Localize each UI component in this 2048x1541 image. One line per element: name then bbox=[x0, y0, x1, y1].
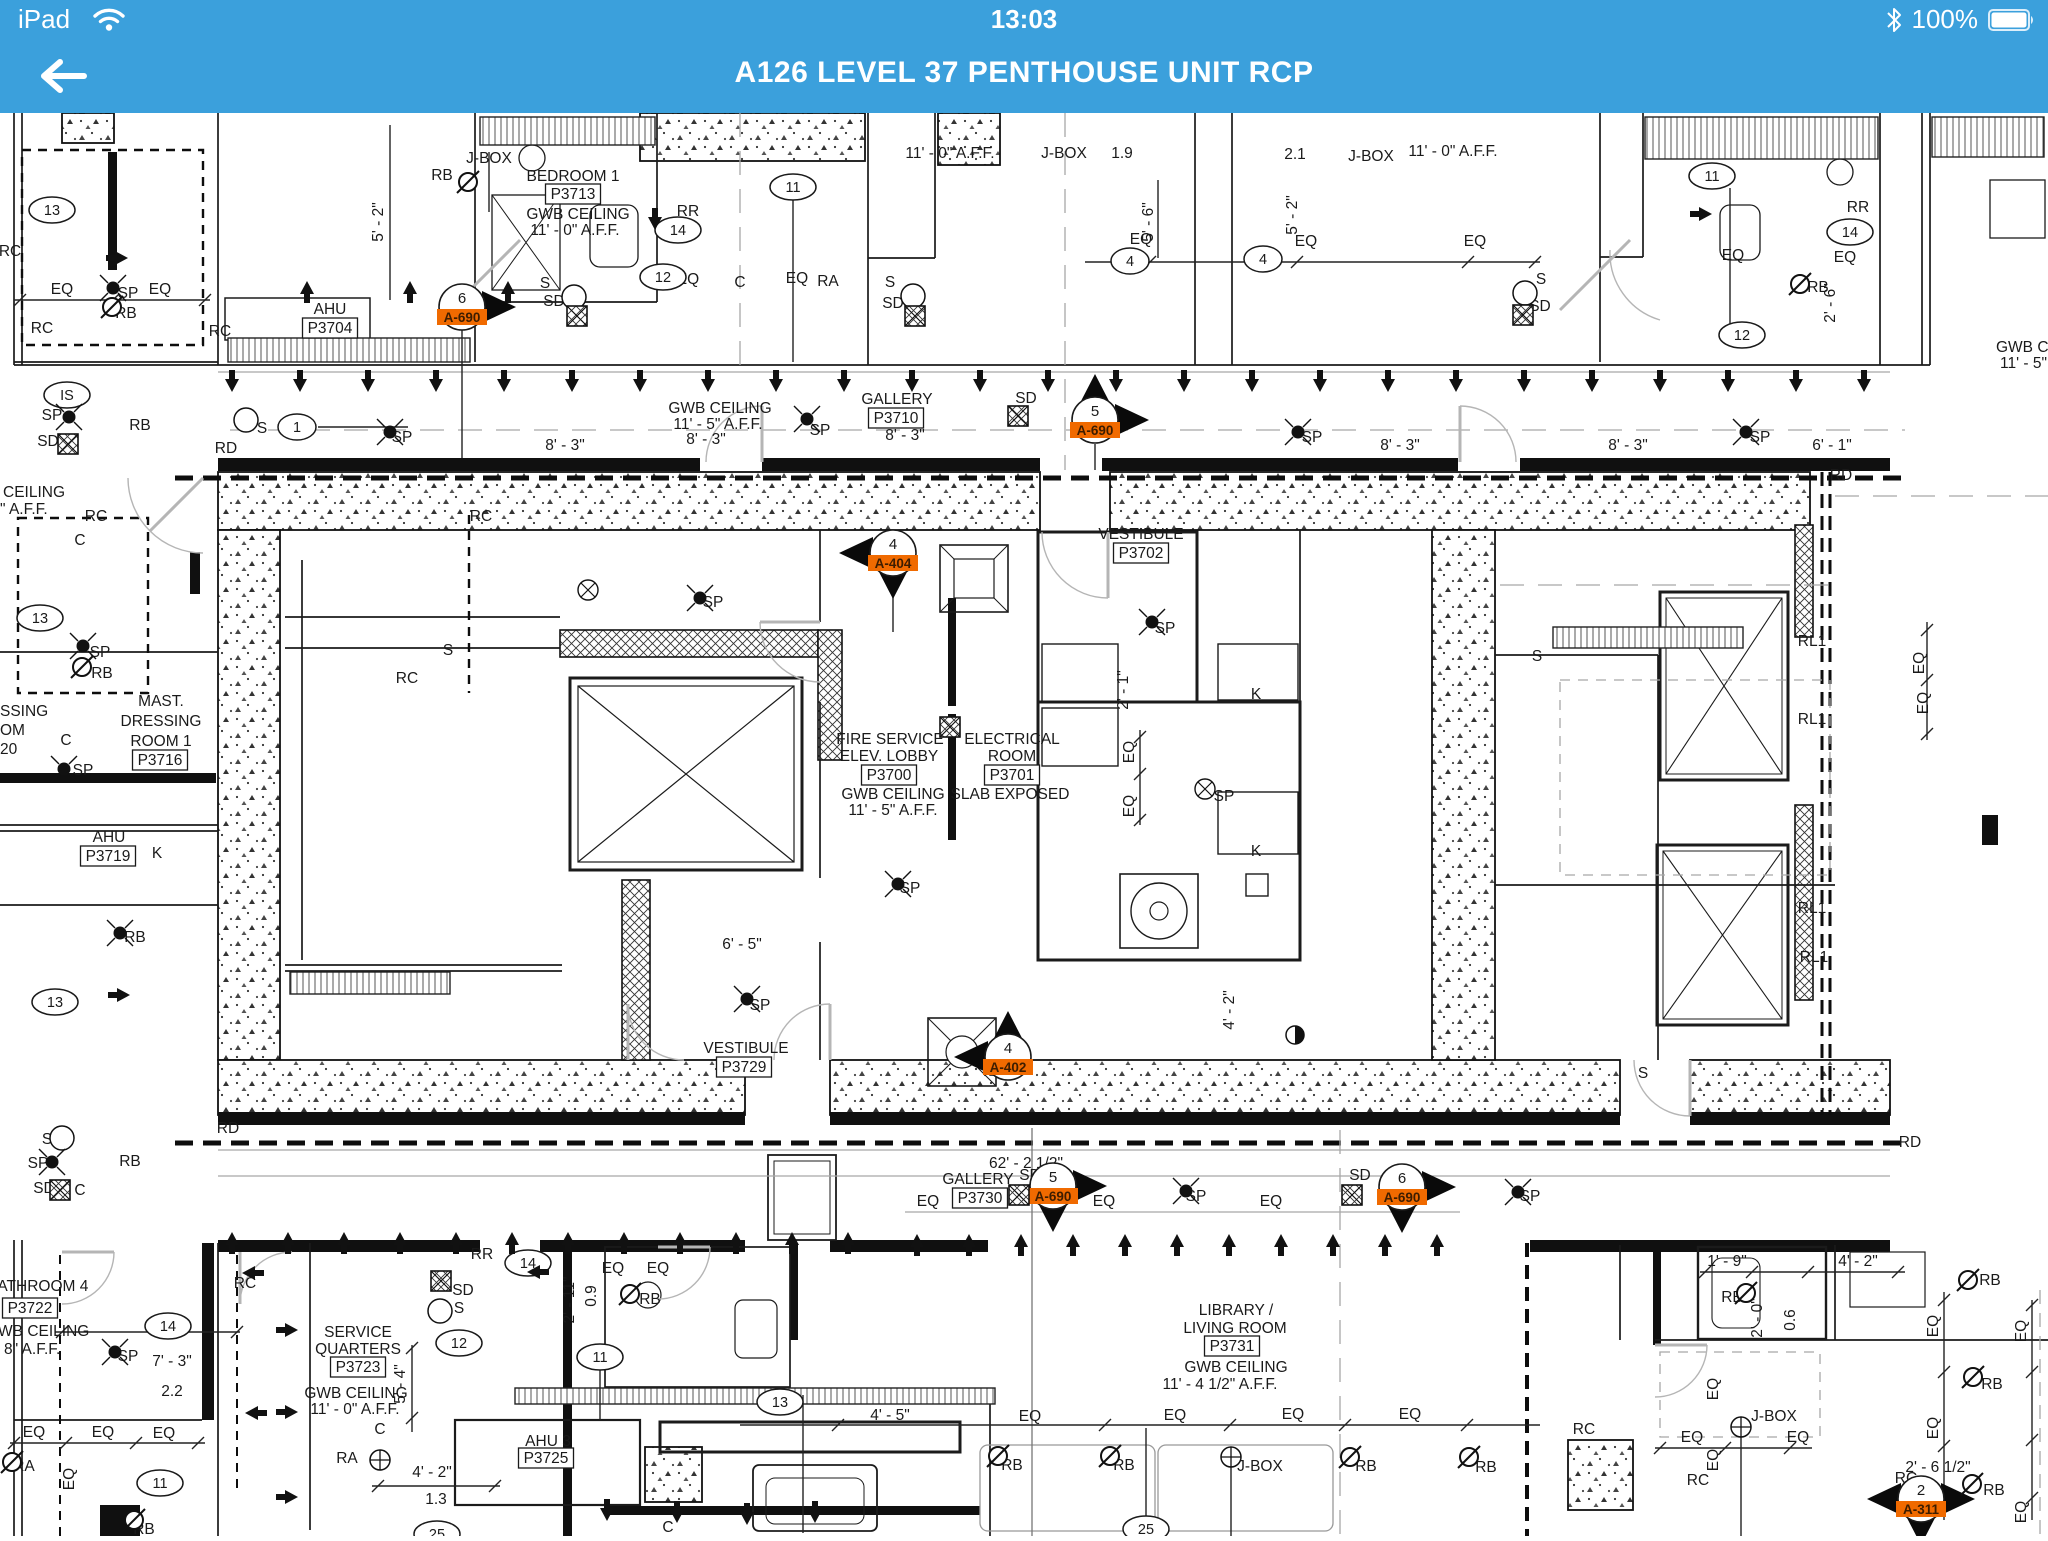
plan-label: 8' - 3" bbox=[545, 437, 584, 454]
plan-label: EQ bbox=[1260, 1193, 1282, 1210]
floor-plan-svg: J-BOXBEDROOM 1GWB CEILING11' - 0" A.F.F.… bbox=[0, 0, 2048, 1536]
plan-label: RD bbox=[1830, 467, 1852, 484]
plan-label: C bbox=[662, 1519, 673, 1536]
plan-label: GALLERY bbox=[861, 391, 932, 408]
grid-bubble-label: 13 bbox=[47, 995, 63, 1011]
room-number: P3700 bbox=[867, 767, 912, 784]
plan-label: RL1 bbox=[1798, 711, 1826, 728]
plan-label: 11' - 0" A.F.F. bbox=[530, 222, 619, 239]
plan-label: RA bbox=[336, 1450, 358, 1467]
plan-label: K bbox=[1251, 843, 1262, 860]
plan-label: SSING bbox=[0, 703, 48, 720]
symbol-sd bbox=[1342, 1185, 1362, 1205]
grid-bubble-label: 13 bbox=[32, 611, 48, 627]
room-number: P3731 bbox=[1210, 1338, 1255, 1355]
battery-percent: 100% bbox=[1912, 4, 1979, 35]
plan-label: RL1 bbox=[1800, 949, 1828, 966]
plan-label: GWB CEILING bbox=[1996, 339, 2048, 356]
plan-label: 5' - 4" bbox=[392, 1364, 409, 1403]
plan-label: GWB CEILING bbox=[668, 400, 771, 417]
plan-label: RR bbox=[1847, 199, 1869, 216]
svg-text:A-690: A-690 bbox=[1077, 423, 1114, 438]
plan-label: RD bbox=[217, 1120, 239, 1137]
symbol-sd bbox=[1008, 406, 1028, 426]
plan-label: EQ bbox=[51, 281, 73, 298]
grid-bubble-label: 1 bbox=[293, 420, 301, 436]
room-number: P3723 bbox=[336, 1359, 381, 1376]
status-bar: iPad 13:03 100% bbox=[0, 0, 2048, 40]
plan-label: RB bbox=[639, 1291, 661, 1308]
plan-label: 11' - 0" A.F.F. bbox=[1408, 143, 1497, 160]
grid-bubble-label: 14 bbox=[160, 1319, 176, 1335]
plan-label: RR bbox=[471, 1246, 493, 1263]
symbol-sd bbox=[50, 1180, 70, 1200]
plan-label: RC bbox=[85, 508, 107, 525]
room-number: P3704 bbox=[308, 320, 353, 337]
plan-label: J-BOX bbox=[1751, 1408, 1797, 1425]
svg-text:5: 5 bbox=[1091, 403, 1099, 420]
plan-label: AHU bbox=[314, 301, 347, 318]
plan-label: 11' - 0" A.F.F. bbox=[905, 145, 994, 162]
grid-bubble-label: 4 bbox=[1126, 254, 1134, 270]
plan-label: 20 bbox=[0, 741, 18, 758]
plan-label: 5' - 2" bbox=[370, 202, 387, 241]
plan-label: EQ bbox=[23, 1424, 45, 1441]
plan-label: C bbox=[734, 274, 745, 291]
plan-label: " A.F.F. bbox=[0, 501, 48, 518]
symbol-sd bbox=[431, 1271, 451, 1291]
svg-text:4: 4 bbox=[1004, 1040, 1012, 1057]
plan-label: EQ bbox=[1722, 247, 1744, 264]
plan-label: S bbox=[1536, 271, 1546, 288]
plan-label: SD bbox=[452, 1282, 474, 1299]
plan-label: GWB CEILING bbox=[1184, 1359, 1287, 1376]
symbol-sd bbox=[940, 717, 960, 737]
plan-label: 5' - 2" bbox=[1284, 195, 1301, 234]
plan-label: 2' - 6" bbox=[1822, 283, 1839, 322]
plan-label: BATHROOM 4 bbox=[0, 1278, 89, 1295]
plan-label: EQ bbox=[917, 1193, 939, 1210]
plan-label: SP bbox=[90, 644, 111, 661]
grid-bubble-label: IS bbox=[60, 388, 74, 404]
plan-label: RB bbox=[1981, 1376, 2003, 1393]
plan-label: EQ bbox=[2013, 1320, 2030, 1342]
grid-bubble-label: 12 bbox=[655, 270, 671, 286]
plan-label: SP bbox=[1750, 429, 1771, 446]
plan-label: J-BOX bbox=[1237, 1458, 1283, 1475]
plan-label: 4' - 2" bbox=[412, 1464, 451, 1481]
plan-label: DRESSING bbox=[121, 713, 202, 730]
title-bar: A126 LEVEL 37 PENTHOUSE UNIT RCP bbox=[0, 40, 2048, 113]
symbol-s bbox=[50, 1126, 74, 1150]
plan-label: 7' - 3" bbox=[152, 1353, 191, 1370]
plan-label: VESTIBULE bbox=[703, 1040, 788, 1057]
plan-label: 11' - 0" A.F.F. bbox=[310, 1401, 399, 1418]
plan-label: C bbox=[374, 1421, 385, 1438]
plan-label: EQ bbox=[2013, 1501, 2030, 1523]
symbol-jbox bbox=[370, 1450, 390, 1470]
plan-label: 6' - 1" bbox=[1812, 437, 1851, 454]
plan-label: 11' - 5" bbox=[2000, 355, 2047, 372]
symbol-sd bbox=[58, 434, 78, 454]
plan-label: EQ bbox=[786, 270, 808, 287]
room-number: P3719 bbox=[86, 848, 131, 865]
svg-text:6: 6 bbox=[458, 290, 466, 307]
plan-label: EQ bbox=[647, 1260, 669, 1277]
symbol-ox bbox=[1195, 779, 1215, 799]
plan-label: SD bbox=[1349, 1167, 1371, 1184]
plan-label: ROOM bbox=[988, 748, 1036, 765]
plan-label: RC bbox=[470, 508, 492, 525]
plan-label: EQ bbox=[1925, 1315, 1942, 1337]
plan-label: RB bbox=[1979, 1272, 2001, 1289]
plan-label: SD bbox=[37, 433, 59, 450]
plan-label: RC bbox=[1573, 1421, 1595, 1438]
plan-label: 4' - 2" bbox=[1838, 1253, 1877, 1270]
plan-label: ELEV. LOBBY bbox=[840, 748, 939, 765]
plan-label: RD bbox=[215, 440, 237, 457]
plan-label: EQ bbox=[602, 1260, 624, 1277]
plan-label: RC bbox=[1687, 1472, 1709, 1489]
svg-text:A-690: A-690 bbox=[444, 310, 481, 325]
plan-label: LIBRARY / bbox=[1199, 1302, 1274, 1319]
plan-label: 2' - 1" bbox=[1115, 670, 1132, 709]
grid-bubble-label: 14 bbox=[670, 223, 686, 239]
plan-label: EQ bbox=[1399, 1406, 1421, 1423]
plan-label: 2.1 bbox=[1284, 146, 1306, 163]
plan-label: QUARTERS bbox=[315, 1341, 401, 1358]
plan-label: S bbox=[443, 642, 453, 659]
plan-label: RB bbox=[1983, 1482, 2005, 1499]
bluetooth-icon bbox=[1886, 6, 1902, 34]
room-number: P3729 bbox=[722, 1059, 767, 1076]
plan-label: RC bbox=[396, 670, 418, 687]
plan-label: SERVICE bbox=[324, 1324, 392, 1341]
plan-label: 4' - 2" bbox=[1221, 990, 1238, 1029]
plan-label: GWB CEILING bbox=[0, 1323, 89, 1340]
plan-label: EQ bbox=[1911, 652, 1928, 674]
plan-label: 1' - 9" bbox=[1707, 1253, 1746, 1270]
plan-label: RB bbox=[431, 167, 453, 184]
plan-label: EQ bbox=[92, 1424, 114, 1441]
plan-label: RL1 bbox=[1798, 900, 1826, 917]
plan-label: 1.3 bbox=[425, 1491, 447, 1508]
plan-label: EQ bbox=[1295, 233, 1317, 250]
room-number: P3701 bbox=[990, 767, 1035, 784]
svg-text:6: 6 bbox=[1398, 1170, 1406, 1187]
plan-label: 10' - 8" A.F.F. bbox=[0, 1341, 60, 1358]
plan-label: S bbox=[1638, 1065, 1648, 1082]
drawing-canvas[interactable]: J-BOXBEDROOM 1GWB CEILING11' - 0" A.F.F.… bbox=[0, 0, 2048, 1536]
plan-label: 4' - 5" bbox=[870, 1407, 909, 1424]
plan-label: RL1 bbox=[1798, 633, 1826, 650]
plan-label: S bbox=[885, 274, 895, 291]
symbol-half bbox=[1286, 1026, 1304, 1044]
plan-label: 0.9 bbox=[583, 1285, 600, 1307]
grid-bubble-label: 11 bbox=[1704, 169, 1719, 185]
plan-label: EQ bbox=[1834, 249, 1856, 266]
plan-label: 11' - 4 1/2" A.F.F. bbox=[1162, 1376, 1277, 1393]
plan-label: BEDROOM 1 bbox=[526, 168, 619, 185]
plan-label: 2' - 11" bbox=[561, 1277, 578, 1324]
plan-label: C bbox=[74, 1182, 85, 1199]
svg-text:4: 4 bbox=[889, 536, 897, 553]
plan-label: SP bbox=[42, 407, 63, 424]
symbol-sd bbox=[905, 306, 925, 326]
symbol-s bbox=[901, 284, 925, 308]
symbol-jbox bbox=[1731, 1417, 1751, 1437]
grid-bubble-label: 14 bbox=[1842, 225, 1858, 241]
svg-text:A-311: A-311 bbox=[1903, 1502, 1940, 1517]
plan-label: 0.6 bbox=[1782, 1309, 1799, 1331]
symbol-ox bbox=[578, 580, 598, 600]
plan-label: SD bbox=[1015, 390, 1037, 407]
grid-bubble-label: 11 bbox=[152, 1476, 167, 1492]
plan-label: J-BOX bbox=[466, 150, 512, 167]
svg-text:2: 2 bbox=[1917, 1482, 1925, 1499]
plan-label: EQ bbox=[1121, 795, 1138, 817]
plan-label: 2.2 bbox=[161, 1383, 183, 1400]
plan-label: 8' - 3" bbox=[1608, 437, 1647, 454]
plan-label: EQ bbox=[1019, 1408, 1041, 1425]
plan-label: EQ bbox=[1925, 1417, 1942, 1439]
plan-label: 1.9 bbox=[1111, 145, 1133, 162]
plan-label: EQ bbox=[153, 1425, 175, 1442]
plan-label: EQ bbox=[1681, 1429, 1703, 1446]
room-number: P3702 bbox=[1119, 545, 1164, 562]
plan-label: 8' - 3" bbox=[686, 431, 725, 448]
plan-label: EQ bbox=[1705, 1378, 1722, 1400]
symbol-sd bbox=[1513, 305, 1533, 325]
status-right: 100% bbox=[1886, 4, 2035, 35]
grid-bubble-label: 11 bbox=[592, 1350, 607, 1366]
plan-label: EQ bbox=[1282, 1406, 1304, 1423]
plan-label: RB bbox=[124, 929, 146, 946]
plan-label: RB bbox=[91, 665, 113, 682]
symbol-s bbox=[234, 408, 258, 432]
grid-bubble-label: 13 bbox=[44, 203, 60, 219]
plan-label: EQ bbox=[1121, 741, 1138, 763]
svg-text:A-402: A-402 bbox=[990, 1060, 1027, 1075]
clock: 13:03 bbox=[0, 4, 2048, 35]
plan-label: EQ bbox=[1164, 1407, 1186, 1424]
plan-label: VESTIBULE bbox=[1098, 526, 1183, 543]
plan-label: EQ bbox=[1915, 692, 1932, 714]
plan-label: EQ bbox=[1705, 1449, 1722, 1471]
plan-label: RC bbox=[209, 323, 231, 340]
battery-icon bbox=[1988, 9, 2034, 31]
plan-label: J-BOX bbox=[1348, 148, 1394, 165]
plan-label: RC bbox=[0, 243, 21, 260]
plan-label: SLAB EXPOSED bbox=[951, 786, 1070, 803]
plan-label: RA bbox=[817, 273, 839, 290]
app-header: iPad 13:03 100% A126 LEVEL 37 PENTHOUSE … bbox=[0, 0, 2048, 113]
plan-label: EQ bbox=[1130, 231, 1152, 248]
plan-label: 8' - 3" bbox=[1380, 437, 1419, 454]
svg-text:A-690: A-690 bbox=[1035, 1189, 1072, 1204]
plan-label: OM bbox=[0, 722, 25, 739]
room-number: P3710 bbox=[874, 410, 919, 427]
plan-label: LIVING ROOM bbox=[1183, 1320, 1286, 1337]
plan-label: AHU bbox=[93, 829, 126, 846]
plan-label: RB bbox=[119, 1153, 141, 1170]
svg-text:A-404: A-404 bbox=[875, 556, 912, 571]
room-number: P3725 bbox=[524, 1450, 569, 1467]
plan-label: MAST. bbox=[138, 693, 184, 710]
room-number: P3716 bbox=[138, 752, 183, 769]
plan-label: ELECTRICAL bbox=[964, 731, 1060, 748]
plan-label: SP bbox=[1214, 788, 1235, 805]
plan-label: C bbox=[74, 532, 85, 549]
grid-bubble-label: 25 bbox=[1138, 1522, 1154, 1536]
plan-label: RC bbox=[31, 320, 53, 337]
plan-label: CEILING bbox=[3, 484, 65, 501]
symbol-sd bbox=[567, 306, 587, 326]
plan-label: RD bbox=[1899, 1134, 1921, 1151]
plan-label: 11' - 5" A.F.F. bbox=[848, 802, 937, 819]
plan-label: EQ bbox=[61, 1468, 78, 1490]
plan-label: EQ bbox=[149, 281, 171, 298]
svg-text:5: 5 bbox=[1049, 1169, 1057, 1186]
grid-bubble-label: 4 bbox=[1259, 252, 1267, 268]
room-number: P3713 bbox=[551, 186, 596, 203]
plan-label: GWB CEILING bbox=[526, 206, 629, 223]
plan-label: EQ bbox=[1787, 1429, 1809, 1446]
plan-label: EQ bbox=[1464, 233, 1486, 250]
plan-label: C bbox=[60, 732, 71, 749]
grid-bubble-label: 11 bbox=[785, 180, 800, 196]
room-number: P3722 bbox=[8, 1300, 53, 1317]
room-number: P3730 bbox=[958, 1190, 1003, 1207]
plan-label: K bbox=[1251, 686, 1262, 703]
grid-bubble-label: 13 bbox=[772, 1395, 788, 1411]
plan-label: J-BOX bbox=[1041, 145, 1087, 162]
plan-label: SP bbox=[1302, 429, 1323, 446]
plan-label: FIRE SERVICE bbox=[836, 731, 943, 748]
plan-label: 2' - 0" bbox=[1749, 1298, 1766, 1337]
grid-bubble-label: 12 bbox=[1734, 328, 1750, 344]
plan-label: RB bbox=[1475, 1459, 1497, 1476]
plan-label: K bbox=[152, 845, 163, 862]
plan-label: 8' - 3" bbox=[885, 427, 924, 444]
plan-label: ROOM 1 bbox=[130, 733, 191, 750]
symbol-sd bbox=[1009, 1185, 1029, 1205]
grid-bubble-label: 12 bbox=[451, 1336, 467, 1352]
plan-label: 6' - 5" bbox=[722, 936, 761, 953]
plan-label: GWB CEILING bbox=[841, 786, 944, 803]
plan-label: S bbox=[454, 1300, 464, 1317]
grid-bubble-label: 25 bbox=[429, 1527, 445, 1536]
sheet-title: A126 LEVEL 37 PENTHOUSE UNIT RCP bbox=[0, 56, 2048, 90]
plan-label: EQ bbox=[1093, 1193, 1115, 1210]
plan-label: S bbox=[540, 275, 550, 292]
plan-label: RB bbox=[129, 417, 151, 434]
plan-label: SP bbox=[73, 762, 94, 779]
symbol-jbox bbox=[1221, 1447, 1241, 1467]
plan-label: S bbox=[1532, 648, 1542, 665]
plan-label: GALLERY bbox=[942, 1171, 1013, 1188]
symbol-s bbox=[428, 1299, 452, 1323]
symbol-s bbox=[1513, 281, 1537, 305]
svg-text:A-690: A-690 bbox=[1384, 1190, 1421, 1205]
